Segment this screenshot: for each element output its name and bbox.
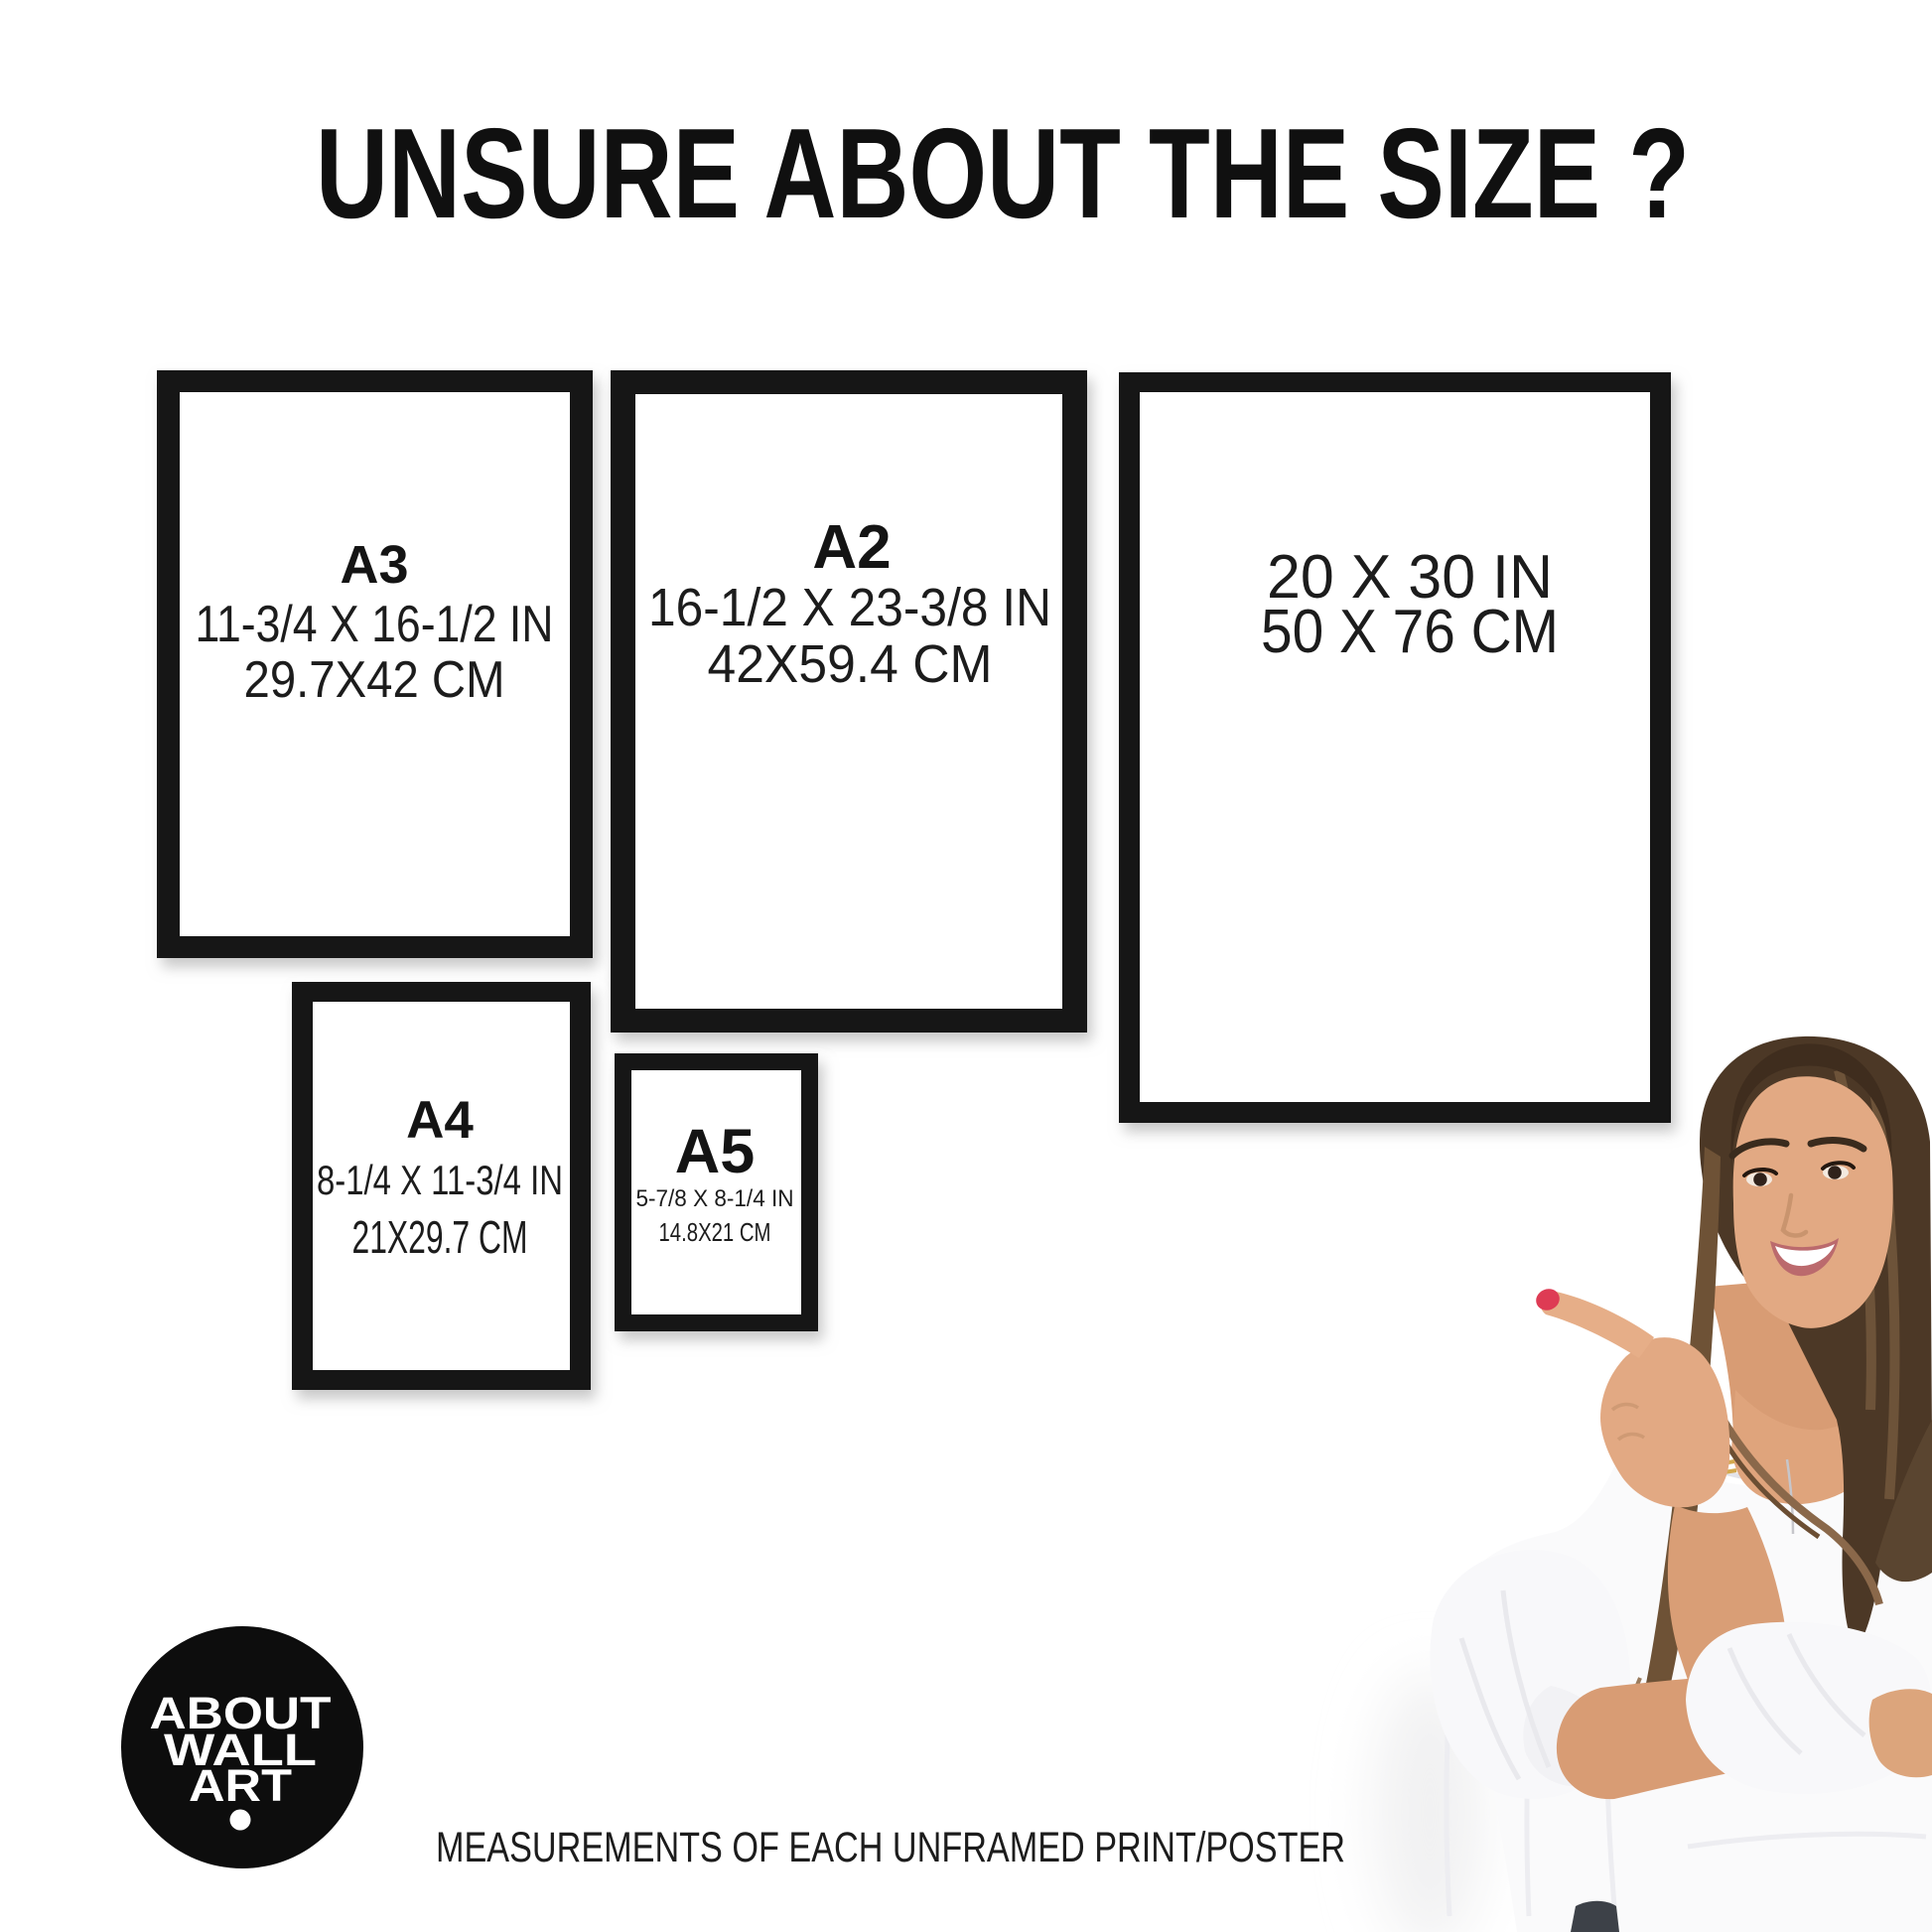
svg-text:A3: A3 — [340, 535, 408, 595]
svg-text:5-7/8 X 8-1/4 IN: 5-7/8 X 8-1/4 IN — [636, 1185, 794, 1212]
svg-text:14.8X21 CM: 14.8X21 CM — [659, 1217, 771, 1247]
svg-text:UNSURE ABOUT THE SIZE ?: UNSURE ABOUT THE SIZE ? — [316, 102, 1690, 245]
svg-text:16-1/2 X 23-3/8 IN: 16-1/2 X 23-3/8 IN — [648, 578, 1051, 637]
svg-text:ART: ART — [189, 1760, 292, 1811]
svg-text:A2: A2 — [812, 513, 891, 582]
svg-text:29.7X42 CM: 29.7X42 CM — [244, 651, 505, 709]
svg-text:11-3/4 X 16-1/2 IN: 11-3/4 X 16-1/2 IN — [196, 596, 554, 653]
svg-text:50 X 76 CM: 50 X 76 CM — [1261, 598, 1559, 666]
svg-text:MEASUREMENTS OF EACH UNFRAMED: MEASUREMENTS OF EACH UNFRAMED PRINT/POST… — [436, 1824, 1345, 1871]
svg-text:8-1/4 X 11-3/4 IN: 8-1/4 X 11-3/4 IN — [317, 1157, 563, 1203]
svg-text:21X29.7 CM: 21X29.7 CM — [352, 1211, 528, 1263]
svg-text:A5: A5 — [675, 1117, 756, 1186]
svg-text:A4: A4 — [406, 1091, 474, 1150]
svg-text:42X59.4 CM: 42X59.4 CM — [708, 634, 993, 694]
